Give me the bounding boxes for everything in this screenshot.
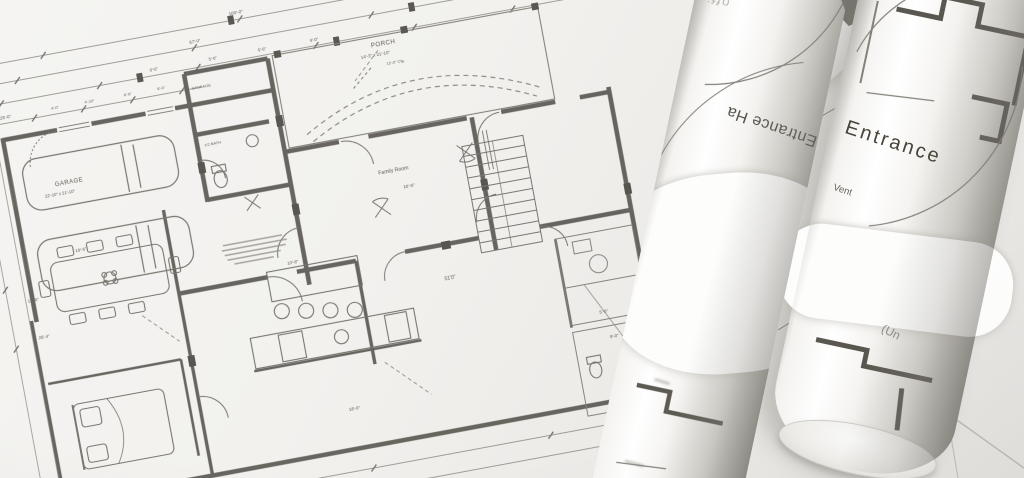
plan-label: 9'-0" (149, 67, 158, 73)
plan-label: GARAGE (54, 176, 83, 187)
plan-label: 4'-0" (51, 105, 60, 110)
plan-label: 6'-0" (257, 47, 266, 53)
plan-label: 9'-0" (310, 37, 319, 43)
plan-label: 5'-0" (208, 56, 217, 62)
plan-label: 17'-6" (27, 297, 39, 303)
plan-label: 1/2 BATH (204, 140, 221, 147)
plan-label: 57'-0" (189, 39, 201, 45)
plan-label: 12'-0" Clg. (386, 59, 405, 66)
plan-label: 51'0" (444, 275, 456, 282)
plan-label: Family Room (378, 166, 409, 177)
blueprint-photo-scene: 100'-0"57'-0"9'-0"5'-0"6'-0"9'-0"23'-6"2… (0, 0, 1024, 478)
plan-label: PORCH (370, 38, 396, 49)
plan-label: 25'-4" (38, 334, 50, 340)
plan-label: 100'-0" (228, 9, 243, 16)
plan-label: 18'-0" (349, 406, 361, 412)
plan-label: 14'-3" x 21'-10" (361, 50, 391, 60)
plan-label: 4'-10" (84, 99, 95, 105)
plan-label: 5'-0" (599, 309, 608, 315)
plan-label: 6'-0" (157, 86, 166, 91)
plan-label: 9'-0" (610, 333, 619, 339)
plan-label: STORAGE (191, 83, 211, 90)
plan-label: 18'-6" (403, 183, 415, 190)
plan-label: 10'-8" (287, 259, 299, 265)
plan-label: 22'-10" x 21'-10" (45, 189, 76, 199)
plan-label: 6'-6" (123, 92, 132, 97)
plan-label: 19'-6" (75, 247, 87, 253)
plan-label: 25'-6" (0, 114, 11, 120)
